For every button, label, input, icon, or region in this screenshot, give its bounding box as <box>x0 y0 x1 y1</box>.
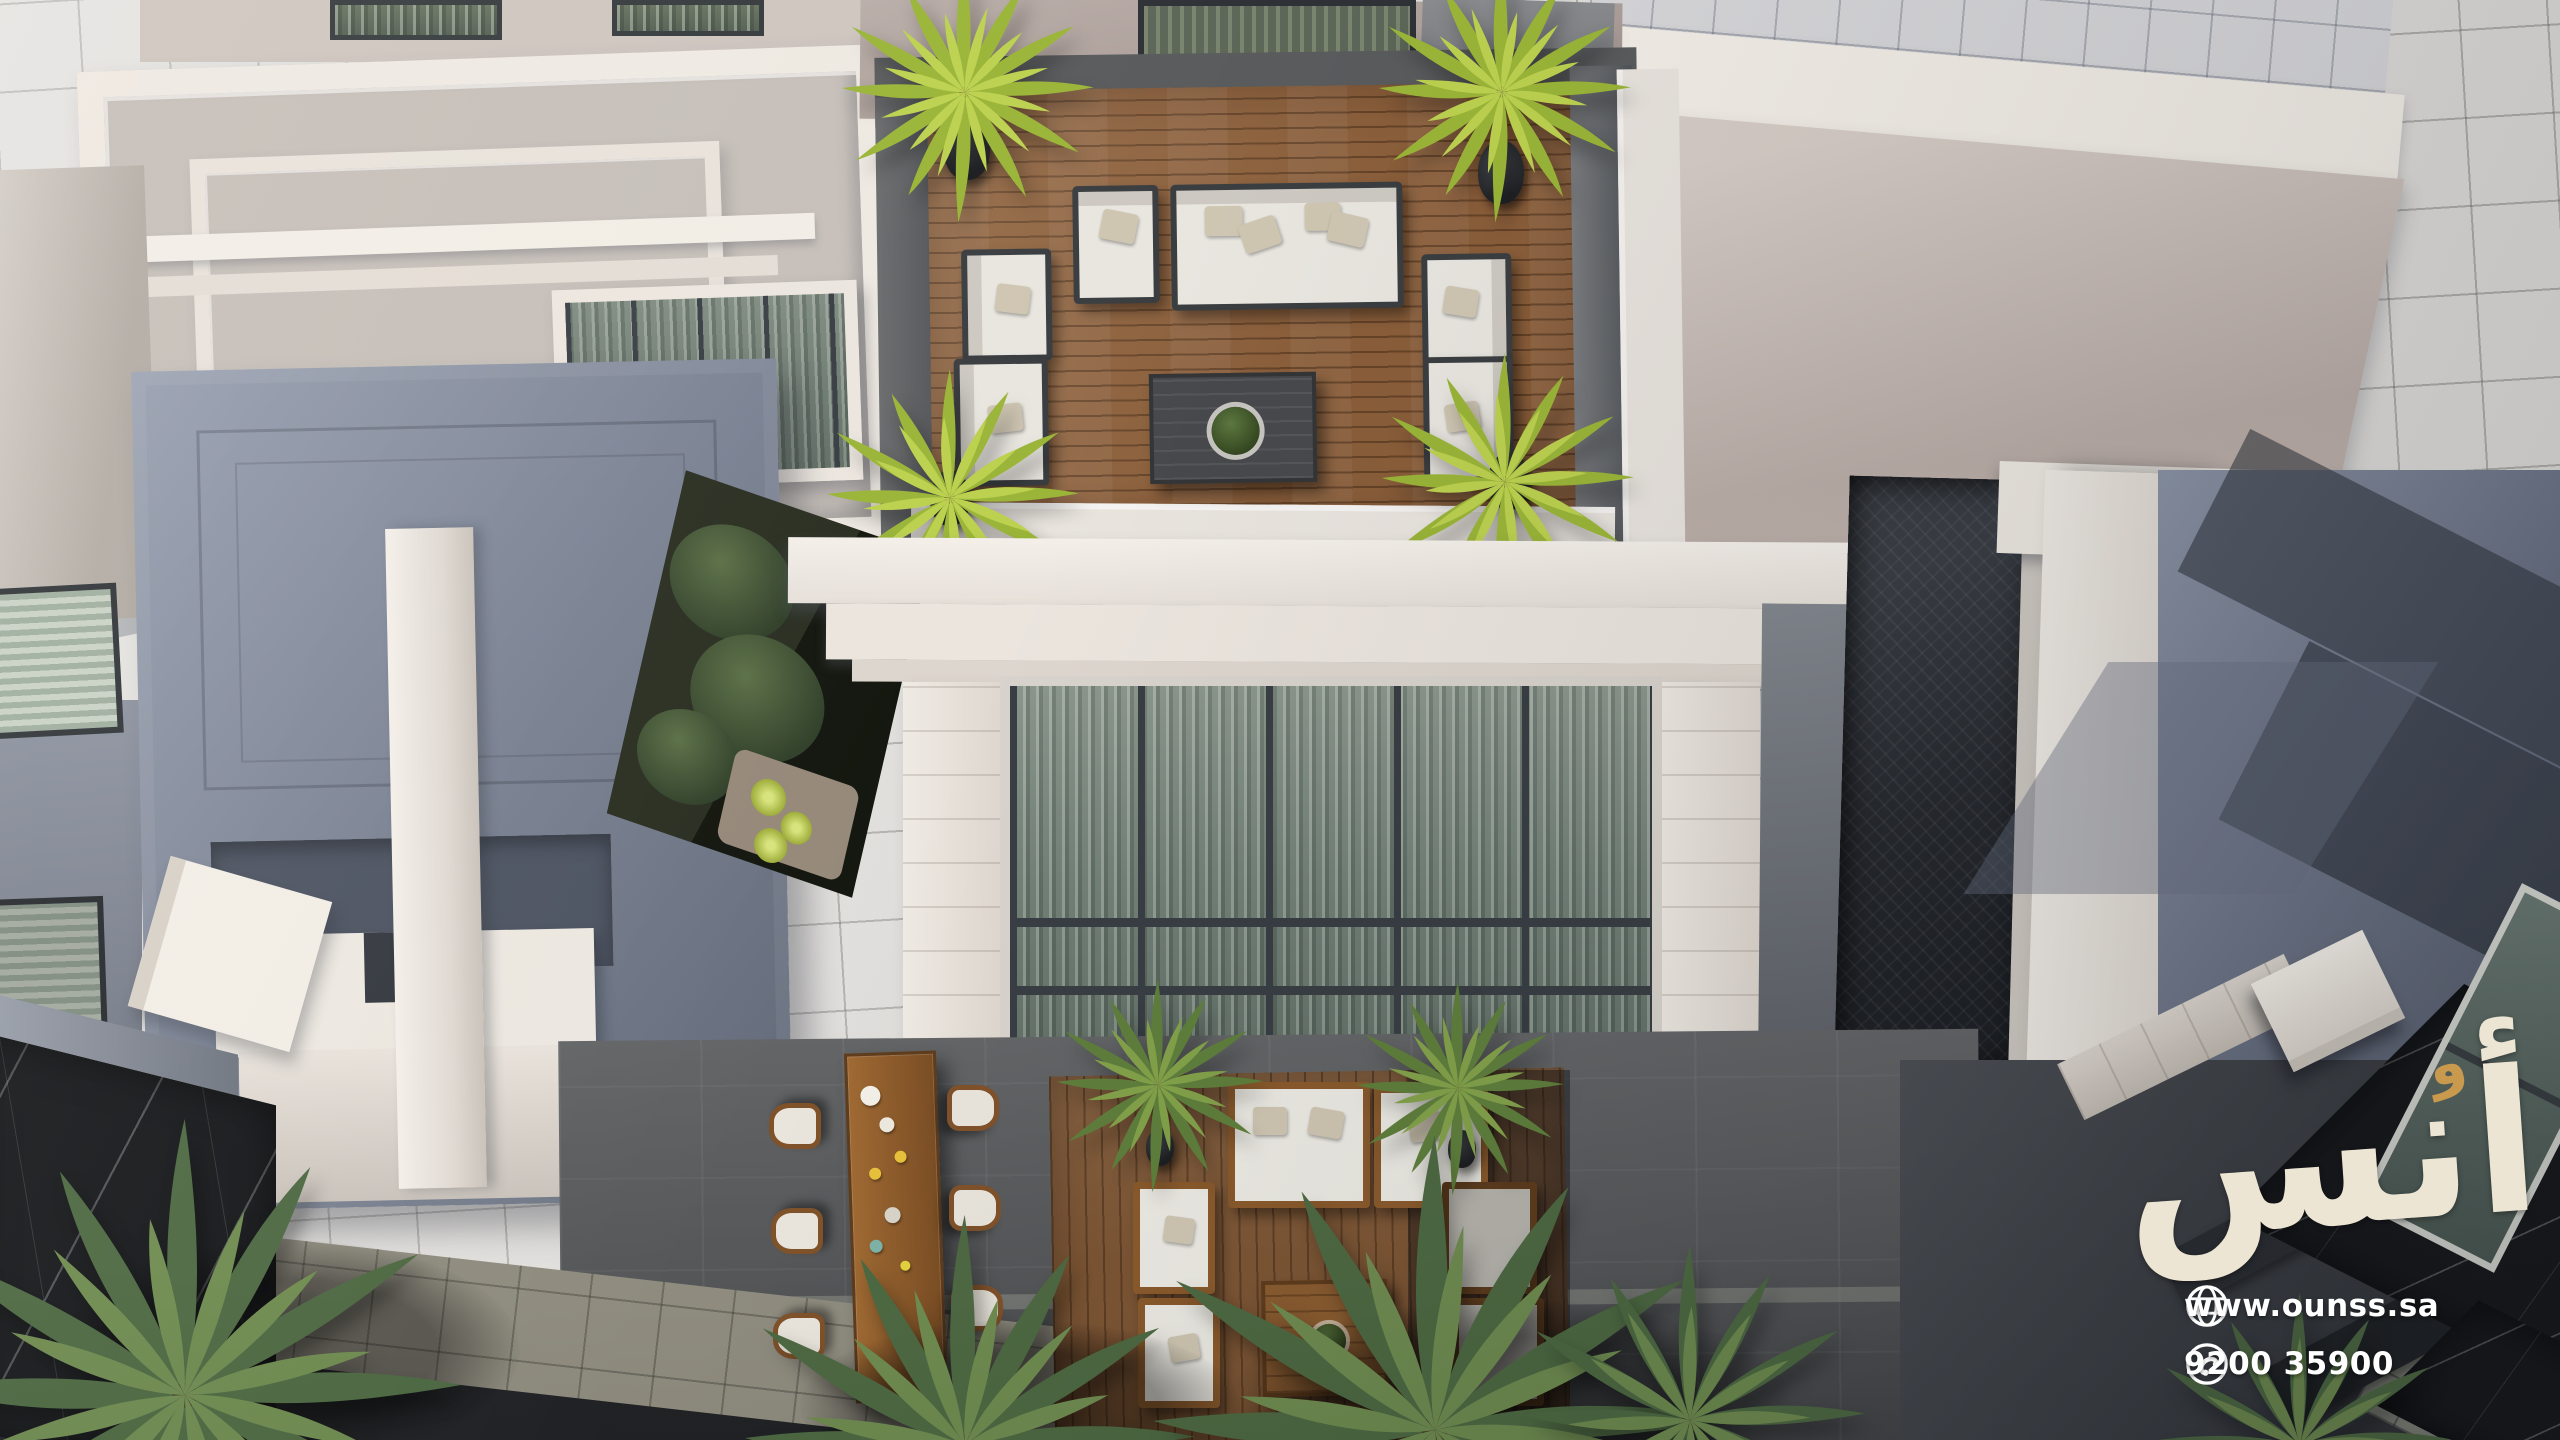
dining-chair <box>947 1085 999 1131</box>
coffee-table <box>1149 372 1318 484</box>
facade-cornice <box>826 603 1848 664</box>
outdoor-armchair <box>961 248 1053 361</box>
cup <box>869 1167 881 1179</box>
throw-pillow <box>1442 285 1480 318</box>
stone-pilaster <box>903 682 1003 1084</box>
upper-floor-window <box>330 0 502 40</box>
aerial-render-scene: أنس و www.ounss.sa 9200 35900 <box>0 0 2560 1440</box>
louvre-window <box>0 583 124 740</box>
stone-pilaster <box>1658 682 1760 1084</box>
plate <box>879 1117 895 1133</box>
phone-number-text: 9200 35900 <box>2184 1346 2394 1382</box>
throw-pillow <box>994 283 1031 315</box>
palm-tree <box>0 1095 485 1440</box>
table-planter <box>1211 407 1260 456</box>
facade-cornice <box>788 537 1893 609</box>
window-mullion-horizontal <box>1010 918 1652 927</box>
website-text: www.ounss.sa <box>2184 1288 2439 1324</box>
phone-row: 9200 35900 <box>2184 1340 2554 1388</box>
cup <box>894 1151 906 1163</box>
throw-pillow <box>1204 206 1242 237</box>
teapot <box>860 1085 881 1106</box>
throw-pillow <box>1237 214 1283 255</box>
lattice-window-well <box>1834 476 2037 1073</box>
palm-tree <box>1500 1230 1880 1440</box>
brand-watermark: أنس و www.ounss.sa 9200 35900 <box>2100 1030 2560 1440</box>
potted-palm <box>1362 0 1642 232</box>
dining-chair <box>769 1103 821 1149</box>
upper-floor-window <box>612 0 764 36</box>
website-row: www.ounss.sa <box>2184 1282 2554 1330</box>
logo-calligraphy: أنس <box>2152 1027 2548 1293</box>
white-pillar <box>385 527 487 1189</box>
potted-palm <box>825 0 1105 232</box>
